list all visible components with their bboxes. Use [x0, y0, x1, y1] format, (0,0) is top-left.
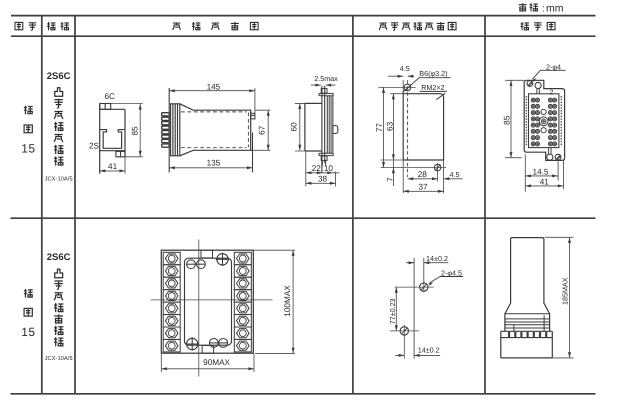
svg-text:14±0.2: 14±0.2: [426, 254, 448, 263]
svg-text:185MAX: 185MAX: [561, 277, 570, 305]
svg-text:100MAX: 100MAX: [283, 285, 292, 317]
svg-text:2: 2: [550, 90, 554, 97]
svg-text:7: 7: [386, 177, 395, 182]
svg-text:85: 85: [131, 126, 140, 136]
svg-text:38: 38: [318, 175, 328, 184]
svg-text:135: 135: [207, 158, 221, 167]
svg-text:41: 41: [108, 162, 118, 171]
svg-text:85: 85: [503, 115, 512, 125]
svg-text:90MAX: 90MAX: [203, 358, 230, 367]
svg-text:60: 60: [290, 122, 299, 132]
svg-text:15: 15: [21, 142, 35, 156]
svg-text:145: 145: [207, 82, 221, 91]
svg-text:22: 22: [312, 164, 322, 173]
svg-text:6C: 6C: [104, 92, 115, 101]
svg-text:JCX-10A/5: JCX-10A/5: [45, 175, 73, 182]
svg-text:63: 63: [385, 121, 394, 131]
svg-text:2S: 2S: [89, 142, 100, 151]
svg-text:15: 15: [21, 325, 35, 339]
svg-text:10: 10: [324, 164, 334, 173]
svg-text:4.5: 4.5: [450, 170, 460, 179]
svg-text::: :: [542, 4, 545, 15]
svg-text:77±0.23: 77±0.23: [388, 298, 397, 324]
svg-text:37: 37: [418, 183, 428, 192]
svg-text:JCX-10A/5: JCX-10A/5: [45, 355, 73, 362]
svg-text:14±0.2: 14±0.2: [418, 345, 440, 354]
svg-text:77: 77: [375, 123, 384, 133]
svg-text:mm: mm: [546, 3, 564, 15]
svg-text:67: 67: [258, 125, 267, 135]
svg-text:41: 41: [540, 177, 550, 186]
svg-text:14.5: 14.5: [533, 167, 549, 176]
svg-text:2.5max: 2.5max: [314, 74, 338, 83]
svg-text:2S6C: 2S6C: [47, 252, 71, 263]
svg-text:2S6C: 2S6C: [47, 71, 71, 82]
svg-text:RM2×2: RM2×2: [421, 83, 444, 92]
svg-text:B6(φ3.2): B6(φ3.2): [419, 69, 447, 78]
svg-text:28: 28: [418, 170, 428, 179]
svg-text:4.5: 4.5: [400, 64, 410, 73]
